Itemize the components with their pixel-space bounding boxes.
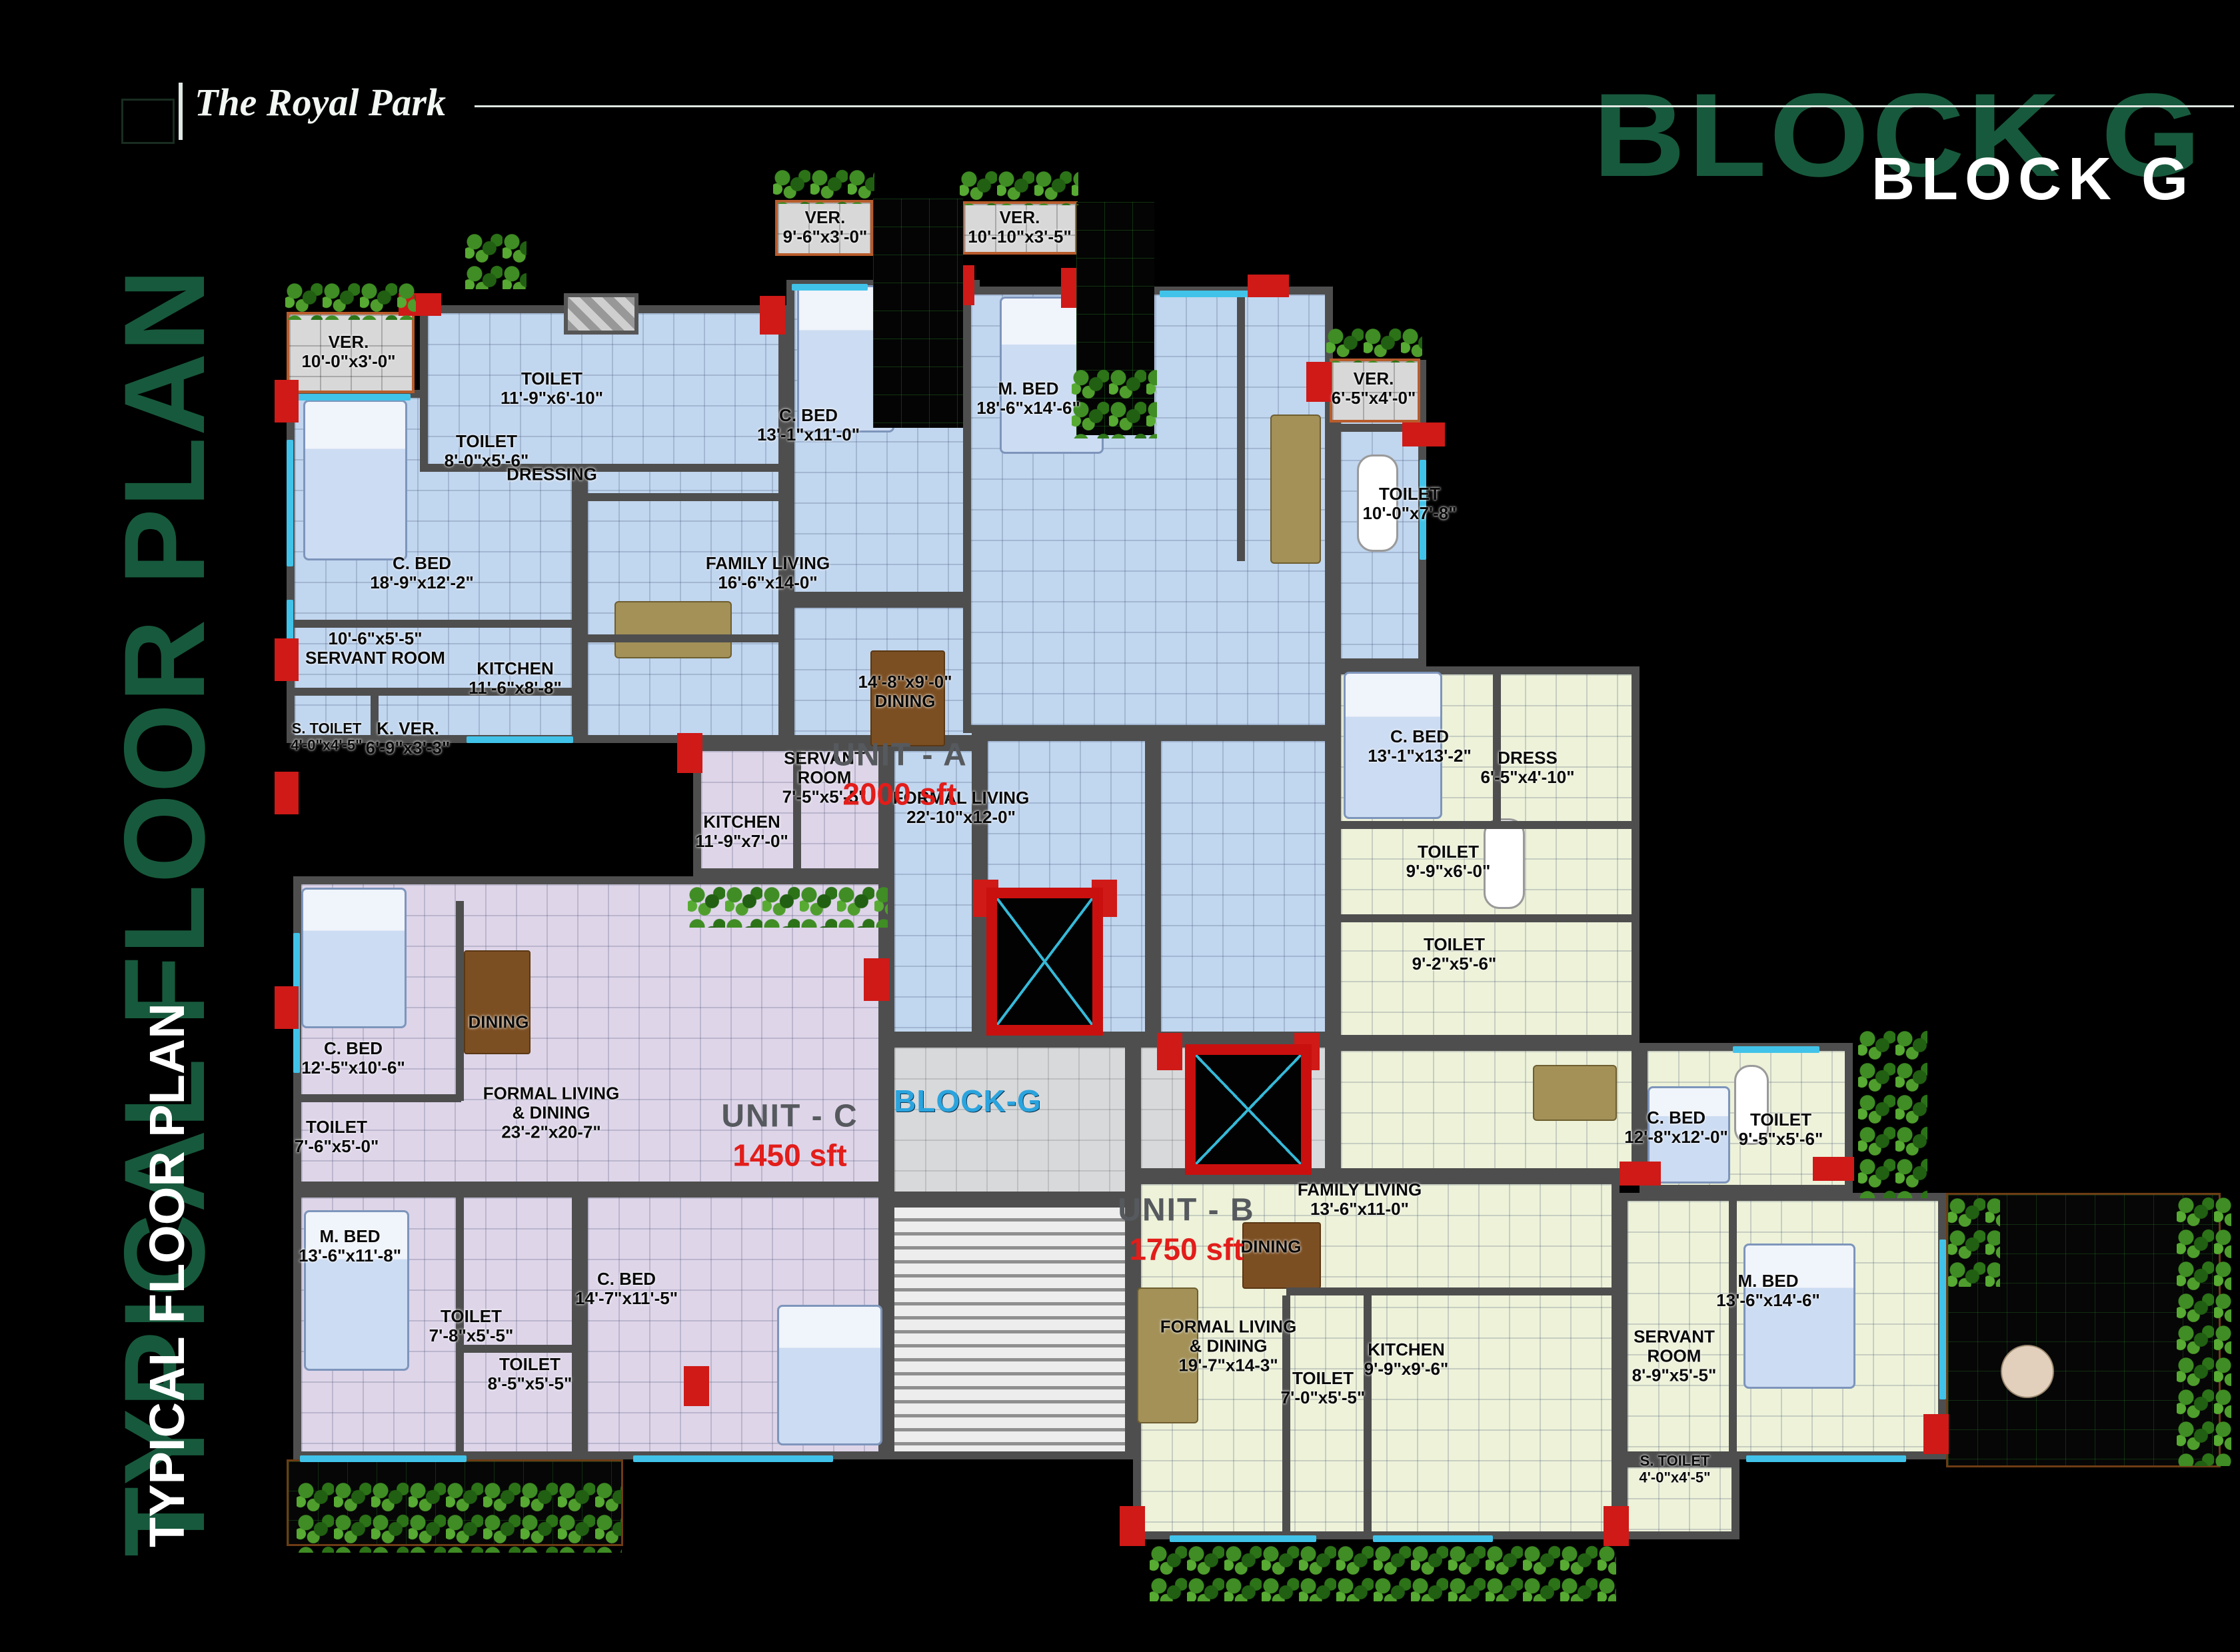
- wall: [295, 1094, 461, 1102]
- plants: [465, 231, 527, 289]
- window: [1939, 1239, 1946, 1399]
- column: [684, 1366, 709, 1406]
- room-label-formal-b: FORMAL LIVING& DINING19'-7"x14-3": [1160, 1317, 1297, 1375]
- column: [275, 986, 299, 1029]
- dining-table: [464, 950, 531, 1054]
- elevator-shaft-2: [1185, 1044, 1312, 1175]
- window: [291, 394, 411, 401]
- wall: [1341, 914, 1632, 922]
- duct-shaft: [564, 293, 638, 335]
- window: [1160, 291, 1260, 297]
- room-label-dress-b: DRESS6'-5"x4'-10": [1480, 748, 1574, 787]
- room-label-cbed-a2: C. BED13'-1"x11'-0": [757, 406, 860, 444]
- unit-b-label: UNIT - B1750 sft: [1118, 1192, 1254, 1267]
- window: [287, 440, 293, 566]
- room-label-toilet-b3: TOILET9'-5"x5'-6": [1739, 1110, 1823, 1149]
- round-table: [2001, 1345, 2054, 1398]
- room-label-toilet-c2: TOILET7'-8"x5'-5": [429, 1307, 514, 1345]
- plants: [285, 280, 416, 320]
- window: [1373, 1535, 1493, 1542]
- column: [275, 380, 299, 422]
- room-label-kver-a: K. VER.6'-9"x3'-3": [366, 719, 451, 758]
- room-label-family-b: FAMILY LIVING13'-6"x11-0": [1298, 1180, 1422, 1219]
- column: [1813, 1157, 1854, 1181]
- room-label-toilet-c1: TOILET7'-6"x5'-0": [295, 1118, 379, 1156]
- plants: [2177, 1194, 2231, 1466]
- room-label-cbed-b1: C. BED13'-1"x13'-2": [1368, 727, 1472, 766]
- column: [1604, 1506, 1629, 1546]
- plants: [960, 168, 1078, 205]
- side-title-white: TYPICAL FLOOR PLAN: [139, 1003, 195, 1547]
- wall: [1341, 821, 1632, 829]
- window: [1170, 1535, 1316, 1542]
- sofa: [614, 601, 732, 658]
- plants: [688, 884, 888, 928]
- wall: [295, 620, 574, 628]
- unit-a-floor-formal: [1153, 733, 1333, 1040]
- room-label-cbed-c1: C. BED12'-5"x10'-6": [301, 1039, 405, 1078]
- room-label-stoilet-b: S. TOILET4'-0"x4'-5": [1639, 1453, 1710, 1485]
- wall: [460, 1345, 580, 1353]
- column: [275, 772, 299, 814]
- brand-logo-text: The Royal Park: [195, 80, 446, 125]
- room-label-ver-a3: VER.10'-10"x3'-5": [968, 208, 1072, 247]
- room-label-kitchen-a: KITCHEN11'-6"x8'-8": [469, 659, 562, 698]
- room-label-kitchen-c: KITCHEN11'-9"x7'-0": [695, 812, 788, 851]
- room-label-formal-c: FORMAL LIVING& DINING23'-2"x20-7": [483, 1084, 620, 1142]
- room-label-stoilet-a: S. TOILET4'-0"x4'-5": [291, 720, 362, 753]
- room-label-ver-a2: VER.9'-6"x3'-0": [783, 208, 868, 247]
- column: [864, 958, 889, 1001]
- planter-box-1: [873, 199, 963, 428]
- column: [1923, 1414, 1949, 1454]
- room-label-servant-b: SERVANTROOM8'-9"x5'-5": [1632, 1327, 1717, 1385]
- room-label-ver-a1: VER.10'-0"x3'-0": [301, 333, 395, 371]
- plants: [1072, 367, 1157, 438]
- room-label-toilet-c3: TOILET8'-5"x5'-5": [488, 1355, 572, 1393]
- bed: [301, 888, 407, 1028]
- room-label-family-a: FAMILY LIVING16'-6"x14-0": [706, 554, 830, 592]
- room-label-toilet-b1: TOILET9'-9"x6'-0": [1406, 842, 1491, 881]
- wall: [580, 634, 786, 642]
- sofa: [1270, 414, 1321, 564]
- room-label-mbed-a: M. BED18'-6"x14'-6": [976, 379, 1080, 418]
- wall: [1364, 1295, 1372, 1535]
- room-label-mbed-b: M. BED13'-6"x14'-6": [1716, 1271, 1820, 1310]
- room-label-cbed-a1: C. BED18'-9"x12'-2": [370, 554, 474, 592]
- block-title-white: BLOCK G: [1871, 145, 2195, 214]
- plants: [1948, 1195, 2000, 1287]
- room-label-toilet-b2: TOILET9'-2"x5'-6": [1412, 935, 1497, 974]
- sofa: [1533, 1065, 1617, 1121]
- wall: [1729, 1197, 1737, 1457]
- core-landing: [886, 1040, 1133, 1200]
- room-label-toilet-a1: TOILET11'-9"x6'-10": [501, 369, 603, 408]
- plants: [1326, 325, 1422, 363]
- column: [1306, 362, 1332, 402]
- unit-a-label: UNIT - A2000 sft: [832, 737, 968, 812]
- unit-c-label: UNIT - C1450 sft: [721, 1098, 858, 1174]
- bed: [777, 1305, 882, 1445]
- brand-logo-mark-icon: [121, 99, 175, 144]
- floor-plan-poster: The Royal Park BLOCK G BLOCK G TYPICAL F…: [0, 0, 2240, 1652]
- window: [467, 736, 573, 743]
- window: [792, 284, 868, 291]
- plants: [1150, 1543, 1616, 1601]
- column: [1402, 422, 1445, 446]
- room-label-cbed-c2: C. BED14'-7"x11'-5": [575, 1269, 678, 1308]
- center-block-label: BLOCK-G: [894, 1083, 1042, 1119]
- wall: [1237, 295, 1245, 561]
- bed: [1743, 1243, 1855, 1389]
- staircase: [886, 1200, 1133, 1459]
- brand-divider-bar: [179, 83, 183, 140]
- room-label-cbed-b2: C. BED12'-8"x12'-0": [1624, 1108, 1728, 1147]
- wall: [580, 493, 786, 501]
- column: [1248, 275, 1289, 297]
- window: [633, 1455, 833, 1462]
- room-label-toilet-a3: TOILET10'-0"x7'-8": [1362, 484, 1456, 523]
- room-label-kitchen-b: KITCHEN9'-9"x9'-6": [1364, 1340, 1449, 1379]
- room-label-ver-a4: VER.6'-5"x4'-0": [1332, 369, 1416, 408]
- window: [300, 1455, 467, 1462]
- plants: [773, 167, 874, 204]
- column: [1620, 1162, 1661, 1186]
- window: [1746, 1455, 1906, 1462]
- plants: [297, 1479, 622, 1553]
- wall: [456, 901, 464, 1101]
- room-label-dressing-a: DRESSING: [507, 464, 597, 484]
- column: [1157, 1033, 1182, 1070]
- header-rule-line: [475, 105, 2234, 107]
- wall: [1286, 1287, 1620, 1295]
- room-label-dining-a: 14'-8"x9'-0"DINING: [858, 672, 952, 711]
- plants: [1858, 1028, 1927, 1198]
- room-label-servant-a1: 10'-6"x5'-5"SERVANT ROOM: [305, 629, 445, 668]
- room-label-dining-c: DINING: [469, 1012, 529, 1032]
- column: [275, 638, 299, 681]
- room-label-toilet-b4: TOILET7'-0"x5'-5": [1281, 1369, 1366, 1407]
- window: [1733, 1046, 1819, 1053]
- room-label-mbed-c: M. BED13'-6"x11'-8": [299, 1227, 401, 1265]
- column: [1120, 1506, 1145, 1546]
- column: [677, 733, 702, 773]
- elevator-shaft-1: [986, 888, 1103, 1036]
- bed: [303, 400, 407, 560]
- column: [760, 296, 785, 335]
